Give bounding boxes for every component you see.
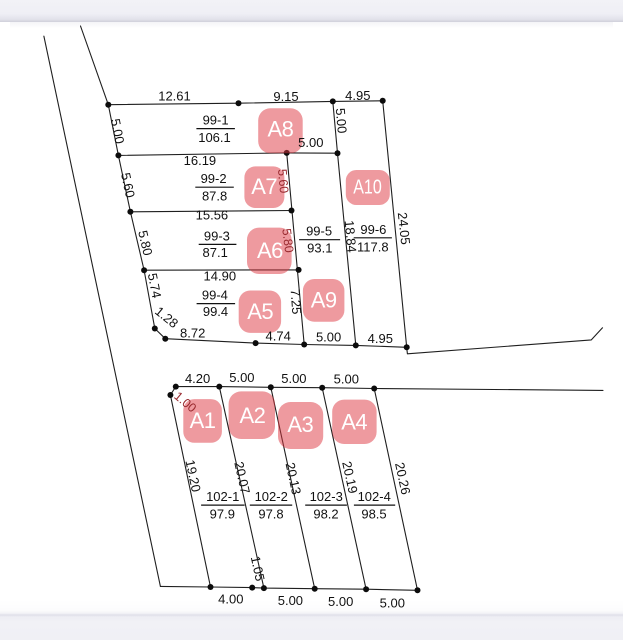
svg-text:102-2: 102-2	[255, 489, 288, 504]
svg-text:4.95: 4.95	[368, 331, 393, 346]
svg-text:99-6: 99-6	[360, 222, 386, 237]
svg-text:12.61: 12.61	[158, 89, 191, 104]
svg-text:5.00: 5.00	[278, 593, 303, 608]
svg-text:9.15: 9.15	[273, 89, 298, 104]
svg-text:106.1: 106.1	[198, 130, 231, 145]
svg-text:99-1: 99-1	[203, 113, 229, 128]
svg-text:87.8: 87.8	[202, 188, 227, 203]
svg-text:97.8: 97.8	[258, 506, 283, 521]
svg-text:99-4: 99-4	[202, 288, 228, 303]
svg-text:A7: A7	[251, 174, 277, 199]
svg-text:8.72: 8.72	[180, 326, 205, 341]
svg-text:102-1: 102-1	[206, 489, 239, 504]
svg-text:98.5: 98.5	[361, 506, 386, 521]
svg-text:5.00: 5.00	[229, 370, 254, 385]
svg-text:16.19: 16.19	[184, 153, 217, 168]
svg-text:99-2: 99-2	[201, 171, 227, 186]
svg-text:14.90: 14.90	[204, 269, 237, 284]
svg-text:98.2: 98.2	[313, 506, 338, 521]
svg-text:A9: A9	[311, 288, 337, 313]
svg-text:99-3: 99-3	[204, 228, 230, 243]
svg-text:15.56: 15.56	[196, 207, 229, 222]
svg-text:A10: A10	[353, 177, 382, 199]
svg-text:87.1: 87.1	[203, 245, 228, 260]
svg-text:5.00: 5.00	[380, 596, 405, 611]
svg-text:A2: A2	[239, 403, 265, 428]
svg-text:99.4: 99.4	[203, 304, 228, 319]
svg-text:4.20: 4.20	[185, 371, 210, 386]
svg-text:99-5: 99-5	[306, 224, 332, 239]
svg-text:7.25: 7.25	[288, 289, 305, 315]
svg-text:117.8: 117.8	[357, 240, 389, 255]
svg-text:5.00: 5.00	[333, 107, 350, 134]
svg-text:A1: A1	[190, 408, 216, 433]
svg-text:A8: A8	[267, 117, 293, 142]
svg-text:5.00: 5.00	[298, 135, 323, 150]
svg-text:93.1: 93.1	[307, 241, 332, 256]
svg-text:5.00: 5.00	[316, 330, 341, 345]
svg-text:A4: A4	[341, 409, 367, 434]
svg-text:5.00: 5.00	[334, 372, 359, 387]
svg-text:A5: A5	[247, 299, 273, 324]
svg-text:4.95: 4.95	[345, 88, 370, 103]
svg-text:102-4: 102-4	[358, 489, 391, 504]
svg-text:102-3: 102-3	[310, 489, 343, 504]
svg-text:5.60: 5.60	[275, 168, 291, 194]
svg-text:5.80: 5.80	[279, 228, 296, 254]
svg-text:A6: A6	[257, 238, 283, 263]
svg-text:A3: A3	[287, 412, 313, 437]
svg-text:5.00: 5.00	[328, 594, 353, 609]
svg-text:97.9: 97.9	[210, 506, 235, 521]
svg-text:5.00: 5.00	[281, 371, 306, 386]
svg-text:4.74: 4.74	[266, 329, 291, 344]
svg-text:4.00: 4.00	[218, 592, 243, 607]
